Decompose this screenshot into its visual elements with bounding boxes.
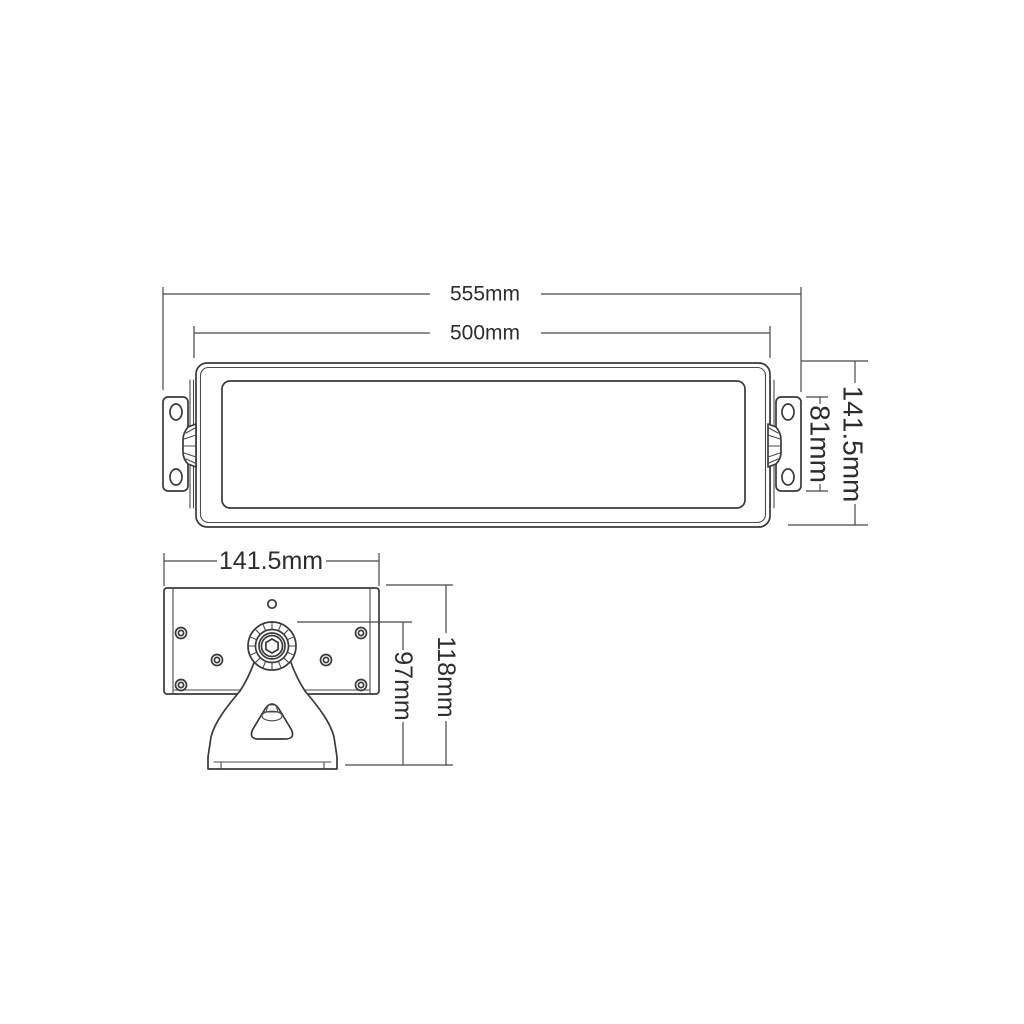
dim-side-width: 141.5mm xyxy=(164,547,379,586)
dim-label-bracket-height: 81mm xyxy=(805,405,836,483)
technical-drawing: 555mm 500mm xyxy=(0,0,1024,1024)
fixture-body xyxy=(196,363,770,527)
dim-label-overall-width: 555mm xyxy=(450,283,520,306)
dim-bracket-height: 81mm xyxy=(805,397,836,491)
bracket-slot-hole xyxy=(782,469,794,485)
dim-label-front-overall-height: 141.5mm xyxy=(838,386,869,503)
front-view: 555mm 500mm xyxy=(163,283,869,528)
mounting-yoke xyxy=(208,660,337,769)
dim-label-inner-width: 500mm xyxy=(450,322,520,345)
mounting-bracket-left xyxy=(163,380,196,508)
bracket-slot-hole xyxy=(170,469,182,485)
bracket-slot-hole xyxy=(782,404,794,420)
dimension-drawing-page: 555mm 500mm xyxy=(0,0,1024,1024)
bracket-slot-hole xyxy=(170,404,182,420)
dim-label-side-overall-height: 118mm xyxy=(432,636,460,718)
dim-inner-width: 500mm xyxy=(194,322,770,359)
lens-panel xyxy=(222,381,745,508)
dim-label-pivot-to-base: 97mm xyxy=(389,651,417,720)
dim-label-side-width: 141.5mm xyxy=(219,547,323,575)
mounting-bracket-right xyxy=(768,380,801,508)
side-view: 141.5mm xyxy=(164,547,460,769)
pilot-hole xyxy=(268,600,276,608)
pivot-knob xyxy=(248,622,296,670)
